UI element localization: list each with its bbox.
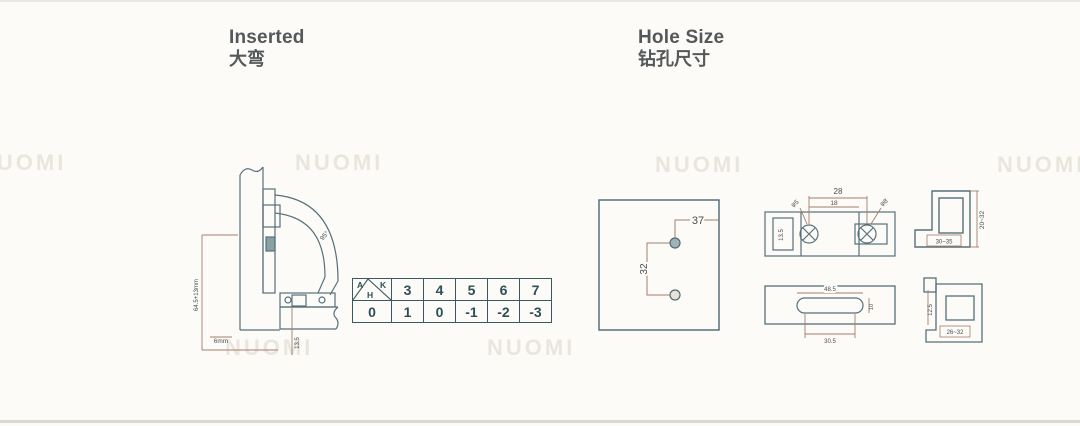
title-hole-size-en: Hole Size (638, 27, 724, 49)
profile-top-drawing: 30~35 20~32 (905, 183, 1000, 276)
slot-dim-inner-label: 30.5 (824, 339, 836, 345)
corner-label-k: K (380, 280, 387, 290)
hinge-cross-section-drawing: 64.5+13mm 95° 6mm 13.5 (180, 145, 345, 375)
plate-hole-right-label: φ8 (879, 197, 890, 207)
slot-plate-svg: 48.5 30.5 10 (760, 276, 900, 356)
drill-panel-drawing: 37 32 (595, 196, 725, 341)
watermark: NUOMI (997, 152, 1080, 178)
page-bottom-rule (0, 420, 1080, 423)
profile-top-svg: 30~35 20~32 (905, 183, 1000, 271)
panel-dim-37-label: 37 (692, 215, 704, 227)
section-title-inserted: Inserted 大弯 (229, 27, 305, 70)
plate-hole-left-label: φ5 (790, 198, 801, 208)
drill-hole-bottom (670, 290, 680, 300)
profile-bottom-drawing: 12.5 26~32 (912, 270, 997, 363)
hinge-left-dim-label: 64.5+13mm (194, 279, 200, 311)
hinge-cross-section-svg: 64.5+13mm 95° 6mm 13.5 (180, 145, 345, 370)
corner-label-a: A (357, 280, 363, 290)
panel-dim-32-label: 32 (639, 263, 650, 275)
watermark: NUOMI (0, 150, 66, 176)
table-value-cell: -3 (520, 301, 552, 323)
corner-label-h: H (367, 290, 373, 300)
plate-dim-28-label: 28 (834, 187, 843, 196)
diagonal-split: A K H (353, 279, 391, 300)
table-value-cell: 0 (424, 301, 456, 323)
table-header-cell: 3 (392, 279, 424, 301)
plate-front-svg: 28 18 φ5 φ8 13.5 (760, 182, 900, 264)
table-value-cell: 1 (392, 301, 424, 323)
hinge-depth-dim-label: 13.5 (295, 337, 301, 349)
section-title-hole-size: Hole Size 钻孔尺寸 (638, 27, 724, 70)
plate-dim-18-label: 18 (830, 200, 838, 207)
plate-dim-side-label: 13.5 (779, 229, 785, 241)
slot-dim-height-label: 10 (869, 304, 875, 310)
table-header-cell: 7 (520, 279, 552, 301)
watermark: NUOMI (487, 335, 575, 361)
table-header-cell: 4 (424, 279, 456, 301)
title-inserted-zh: 大弯 (229, 49, 305, 70)
table-header-cell: 5 (456, 279, 488, 301)
title-inserted-en: Inserted (229, 27, 305, 49)
plate-front-drawing: 28 18 φ5 φ8 13.5 (760, 182, 900, 269)
page-top-rule (0, 0, 1080, 2)
profile-top-depth-label: 30~35 (936, 240, 954, 246)
profile-bottom-depth-label: 26~32 (947, 330, 965, 336)
slot-plate-drawing: 48.5 30.5 10 (760, 276, 900, 361)
drill-hole-top (670, 238, 680, 248)
profile-top-height-label: 20~32 (979, 210, 986, 229)
profile-bottom-svg: 12.5 26~32 (912, 270, 997, 358)
table-value-cell: -1 (456, 301, 488, 323)
table-row-label-cell: 0 (353, 301, 392, 323)
hinge-bottom-dim-label: 6mm (214, 338, 228, 345)
table-value-cell: -2 (488, 301, 520, 323)
watermark: NUOMI (655, 152, 743, 178)
drill-panel-svg: 37 32 (595, 196, 725, 336)
title-hole-size-zh: 钻孔尺寸 (638, 49, 724, 70)
adjustment-table: A K H 3 4 5 6 7 0 1 0 -1 -2 -3 (352, 278, 552, 323)
table-row: A K H 3 4 5 6 7 (353, 279, 552, 301)
slot-cutout (797, 298, 863, 313)
table-corner-cell: A K H (353, 279, 392, 301)
slot-dim-outer-label: 48.5 (824, 287, 836, 293)
table-header-cell: 6 (488, 279, 520, 301)
table-row: 0 1 0 -1 -2 -3 (353, 301, 552, 323)
profile-bottom-side-label: 12.5 (928, 304, 934, 316)
